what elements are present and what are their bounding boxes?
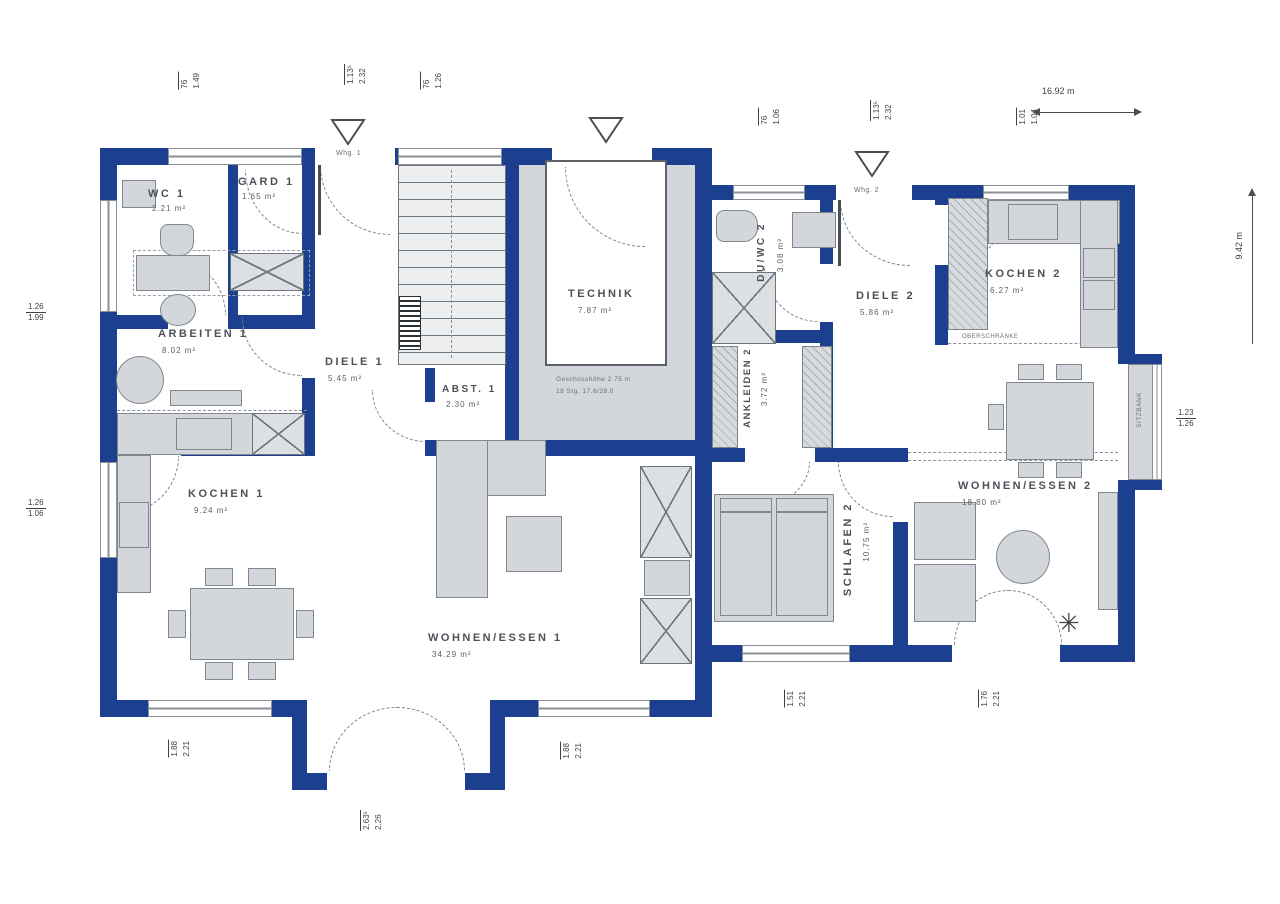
room-label: ANKLEIDEN 2 [742, 348, 753, 428]
kitchen2-note: OBERSCHRÄNKE [962, 334, 1018, 340]
entrance-marker-icon [588, 116, 624, 144]
coffee-table [996, 530, 1050, 584]
sofa [436, 440, 488, 598]
room-area: 6.27 m² [990, 286, 1024, 295]
mattress [776, 512, 828, 616]
room-label: KOCHEN 1 [188, 488, 265, 500]
door-leaf [838, 200, 841, 266]
room-label: ABST. 1 [442, 384, 497, 395]
room-area: 9.24 m² [194, 506, 228, 515]
room-area: 2.30 m² [446, 400, 480, 409]
arrow-up-icon [1248, 188, 1256, 196]
technik-note: Geschosshöhe 2.75 m [556, 376, 631, 383]
room-label: TECHNIK [568, 288, 634, 300]
dimension-tag: 761.26 [420, 72, 445, 90]
door-opening [893, 462, 908, 522]
window-seat-label: SITZBANK [1136, 392, 1143, 428]
dashed-line [117, 410, 307, 411]
wall [505, 148, 519, 448]
dimension-tag: 1.13⁵2.32 [344, 64, 369, 85]
dining-table [1006, 382, 1094, 460]
washbasin [792, 212, 836, 248]
window [398, 148, 502, 165]
sink [119, 502, 149, 548]
door-arc [1008, 590, 1062, 645]
entrance-label: Whg. 1 [336, 150, 361, 157]
cabinet [640, 466, 692, 558]
door-arc [242, 318, 302, 376]
office-chair [160, 294, 196, 326]
door-arc [840, 200, 910, 266]
window [733, 185, 805, 200]
chair [1056, 462, 1082, 478]
room-area: 3.72 m² [760, 372, 769, 406]
room-area: 18.80 m² [962, 498, 1002, 507]
dimension-tag: 1.231.26 [1176, 408, 1196, 429]
desk [136, 255, 210, 291]
overall-width-label: 16.92 m [1042, 86, 1075, 96]
dashed-line [908, 460, 1118, 461]
dimension-line [1252, 196, 1253, 344]
window [538, 700, 650, 717]
door-opening [820, 264, 833, 322]
chair [988, 404, 1004, 430]
dimension-line [1036, 112, 1138, 113]
room-label: SCHLAFEN 2 [842, 502, 854, 596]
arrow-right-icon [1134, 108, 1142, 116]
bay-window [1152, 364, 1162, 480]
room-area: 10.75 m² [862, 522, 871, 562]
dimension-tag: 1.261.06 [26, 498, 46, 519]
window [100, 200, 117, 312]
chair [205, 568, 233, 586]
oven [1083, 280, 1115, 310]
mattress [720, 512, 772, 616]
entrance-marker-icon [330, 118, 366, 146]
plant-icon: ✳ [1058, 608, 1080, 639]
arrow-left-icon [1032, 108, 1040, 116]
wardrobe [802, 346, 832, 448]
chair [248, 662, 276, 680]
chair [168, 610, 186, 638]
sink [1008, 204, 1058, 240]
tv-board [1098, 492, 1118, 610]
dimension-tag: 761.06 [758, 108, 783, 126]
window [148, 700, 272, 717]
door-arc [329, 707, 397, 771]
wardrobe [712, 346, 738, 448]
tall-cabinet [948, 198, 988, 330]
room-label: KOCHEN 2 [985, 268, 1062, 280]
room-label: WOHNEN/ESSEN 2 [958, 480, 1093, 492]
sofa [914, 502, 976, 560]
floor-plan: ✳ WC 1 2.21 m² GARD 1 1.65 m² ARBEITEN 1… [0, 0, 1280, 904]
pillow [776, 498, 828, 512]
chair [248, 568, 276, 586]
room-label: GARD 1 [238, 176, 295, 188]
round-table [116, 356, 164, 404]
stair-walkline [451, 170, 452, 358]
sofa [914, 564, 976, 622]
wall [425, 368, 435, 402]
pillow [720, 498, 772, 512]
room-area: 3.08 m² [776, 238, 785, 272]
room-area: 34.29 m² [432, 650, 472, 659]
toilet [160, 224, 194, 256]
dimension-tag: 1.261.99 [26, 302, 46, 323]
dimension-tag: 2.63⁵2.26 [360, 810, 385, 831]
room-area: 2.21 m² [152, 204, 186, 213]
dimension-tag: 1.882.21 [168, 740, 193, 758]
dimension-tag: 761.49 [178, 72, 203, 90]
chair [296, 610, 314, 638]
toilet [716, 210, 758, 242]
technik-note: 18 Stg. 17.6/28.0 [556, 388, 614, 395]
party-wall [695, 148, 712, 717]
hob [176, 418, 232, 450]
coffee-table [506, 516, 562, 572]
room-label: WC 1 [148, 188, 186, 200]
dimension-tag: 1.882.21 [560, 742, 585, 760]
room-label: DIELE 1 [325, 356, 384, 368]
room-label: DU/WC 2 [756, 222, 767, 282]
dimension-tag: 1.13⁵2.32 [870, 100, 895, 121]
radiator [399, 296, 421, 350]
room-label: WOHNEN/ESSEN 1 [428, 632, 563, 644]
wall [1128, 354, 1162, 364]
chair [1018, 364, 1044, 380]
chair [205, 662, 233, 680]
dimension-tag: 1.762.21 [978, 690, 1003, 708]
window [742, 645, 850, 662]
overall-height-label: 9.42 m [1234, 232, 1244, 260]
sideboard [170, 390, 242, 406]
chair [1018, 462, 1044, 478]
window [100, 462, 117, 558]
door-opening [745, 448, 815, 462]
dining-table [190, 588, 294, 660]
window [168, 148, 302, 165]
terrace-double-door-1 [327, 771, 465, 792]
tall-cabinet [252, 413, 305, 455]
room-area: 7.87 m² [578, 306, 612, 315]
room-label: DIELE 2 [856, 290, 915, 302]
room-area: 5.86 m² [860, 308, 894, 317]
dimension-tag: 1.512.21 [784, 690, 809, 708]
door-opening [935, 205, 948, 265]
shower [712, 272, 776, 344]
chair [1056, 364, 1082, 380]
entrance-label: Whg. 2 [854, 187, 879, 194]
wardrobe [230, 253, 304, 291]
room-label: ARBEITEN 1 [158, 328, 248, 340]
door-leaf [318, 165, 321, 235]
terrace-double-door-2 [952, 645, 1060, 662]
oven [1083, 248, 1115, 278]
door-arc [372, 390, 426, 442]
window [983, 185, 1069, 200]
room-area: 5.45 m² [328, 374, 362, 383]
tv-board [644, 560, 690, 596]
door-arc [397, 707, 465, 771]
room-area: 8.02 m² [162, 346, 196, 355]
door-arc [320, 165, 390, 235]
entrance-marker-icon [854, 150, 890, 178]
wall [1128, 480, 1162, 490]
cabinet [640, 598, 692, 664]
room-area: 1.65 m² [242, 192, 276, 201]
